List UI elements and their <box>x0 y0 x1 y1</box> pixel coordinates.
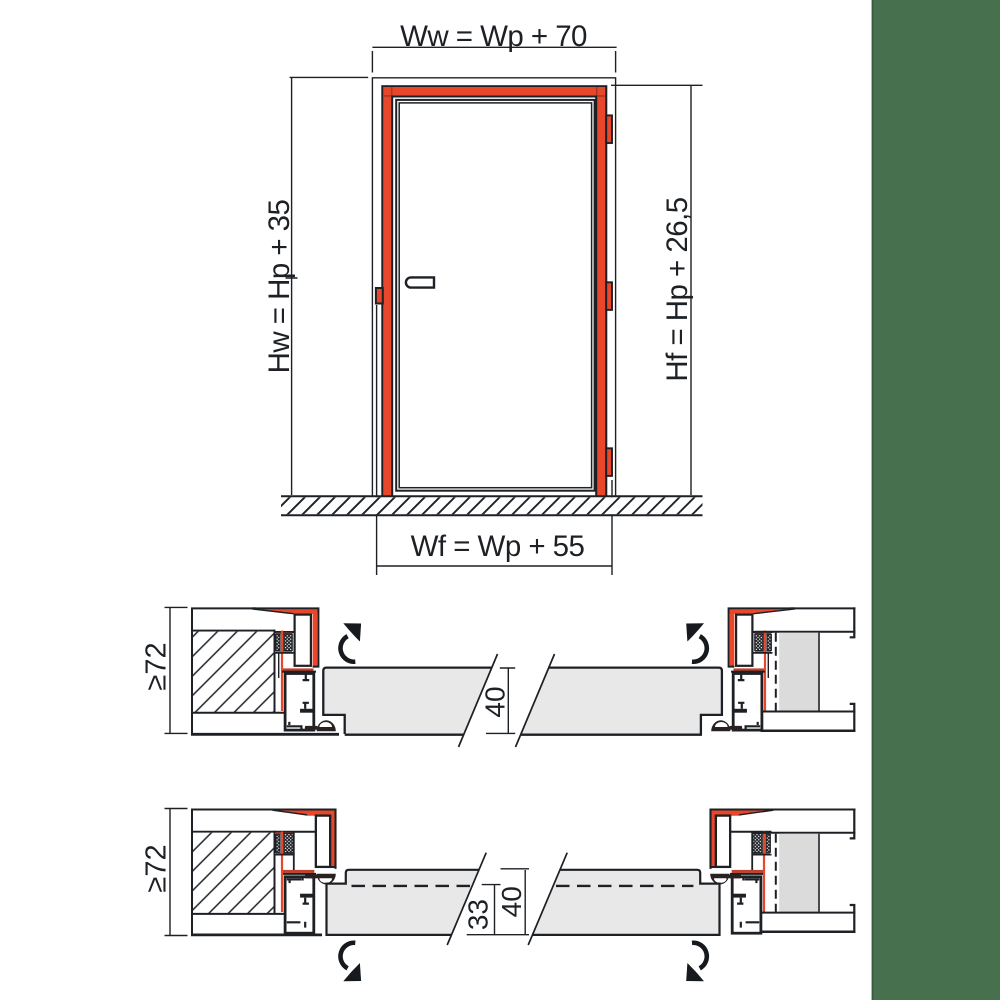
svg-text:Ww = Wp + 70: Ww = Wp + 70 <box>400 20 587 53</box>
svg-text:40: 40 <box>480 686 511 717</box>
svg-text:Hf = Hp + 26,5: Hf = Hp + 26,5 <box>661 197 694 381</box>
svg-text:40: 40 <box>496 886 527 917</box>
svg-text:Hw = Hp + 35: Hw = Hp + 35 <box>263 199 296 373</box>
svg-text:Wf = Wp + 55: Wf = Wp + 55 <box>411 530 585 563</box>
svg-text:≥72: ≥72 <box>141 642 173 690</box>
svg-text:33: 33 <box>463 899 494 930</box>
svg-text:≥72: ≥72 <box>141 844 173 892</box>
